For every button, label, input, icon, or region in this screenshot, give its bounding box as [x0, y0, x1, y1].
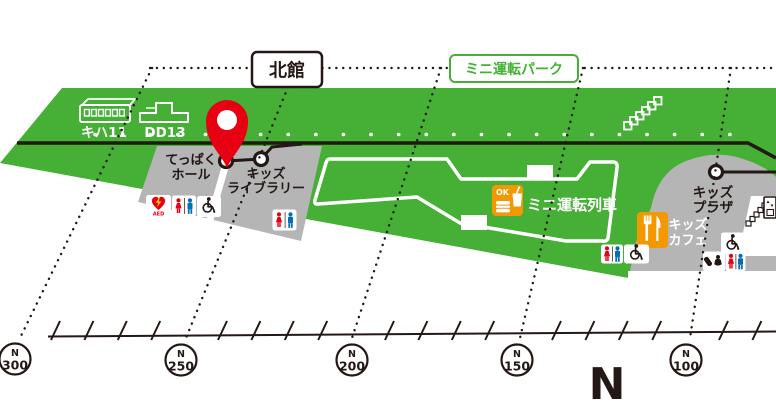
restroom-icon [726, 252, 746, 272]
restroom-icon [273, 210, 297, 231]
food-allowed-icon: OK [492, 185, 523, 216]
wheelchair-icon [197, 196, 221, 217]
svg-text:100: 100 [673, 359, 699, 374]
elevator-icon [764, 197, 776, 218]
north-marker-300: N 300 [0, 344, 31, 375]
ruler-ticks [51, 321, 761, 340]
kids-cafe-label: カフェ [668, 234, 707, 249]
mini-drive-park-badge[interactable]: ミニ運転パーク [450, 55, 578, 82]
mini-drive-park-label: ミニ運転パーク [465, 61, 563, 78]
nursing-room-icon [703, 252, 725, 272]
teppaku-hall-label: てっぱく [165, 152, 216, 168]
map-area: キハ11 DD13 [0, 88, 776, 316]
station-marker [710, 166, 723, 179]
svg-text:150: 150 [504, 359, 530, 374]
north-marker-250: N 250 [166, 345, 197, 376]
kids-plaza-label: キッズ [693, 184, 734, 201]
north-marker-200: N 200 [337, 345, 368, 376]
wheelchair-icon [721, 233, 745, 255]
kids-library-label: キッズ [246, 166, 285, 182]
course-platform [527, 165, 553, 178]
kids-library-label: ライブラリー [227, 181, 305, 197]
museum-floor-map: キハ11 DD13 [0, 0, 776, 420]
north-marker-100: N 100 [671, 345, 702, 376]
compass-north: N [589, 359, 626, 410]
below-dome-mask [628, 271, 776, 316]
restroom-icon [172, 196, 196, 217]
svg-text:250: 250 [168, 359, 194, 374]
aed-label: AED [153, 212, 164, 218]
wheelchair-icon [624, 244, 649, 263]
teppaku-hall-label: ホール [171, 168, 210, 183]
north-marker-150: N 150 [502, 345, 533, 376]
restaurant-icon [637, 212, 668, 248]
svg-text:200: 200 [339, 359, 365, 374]
scale-ruler: N 300 N 250 N 200 N 150 N 100 N [0, 321, 776, 410]
kids-cafe-label: キッズ [668, 217, 707, 233]
train-dd13-label: DD13 [144, 125, 185, 141]
restroom-icon [601, 245, 623, 264]
mini-drive-train-label: ミニ運転列車 [527, 196, 617, 214]
train-kiha11-label: キハ11 [81, 125, 127, 141]
north-building-label: 北館 [269, 60, 305, 82]
course-platform [461, 215, 487, 230]
aed-icon: AED [146, 195, 171, 218]
north-building-badge[interactable]: 北館 [252, 52, 322, 87]
kids-plaza-label: プラザ [693, 200, 734, 216]
food-ok-label: OK [496, 188, 510, 197]
svg-text:300: 300 [2, 358, 28, 373]
